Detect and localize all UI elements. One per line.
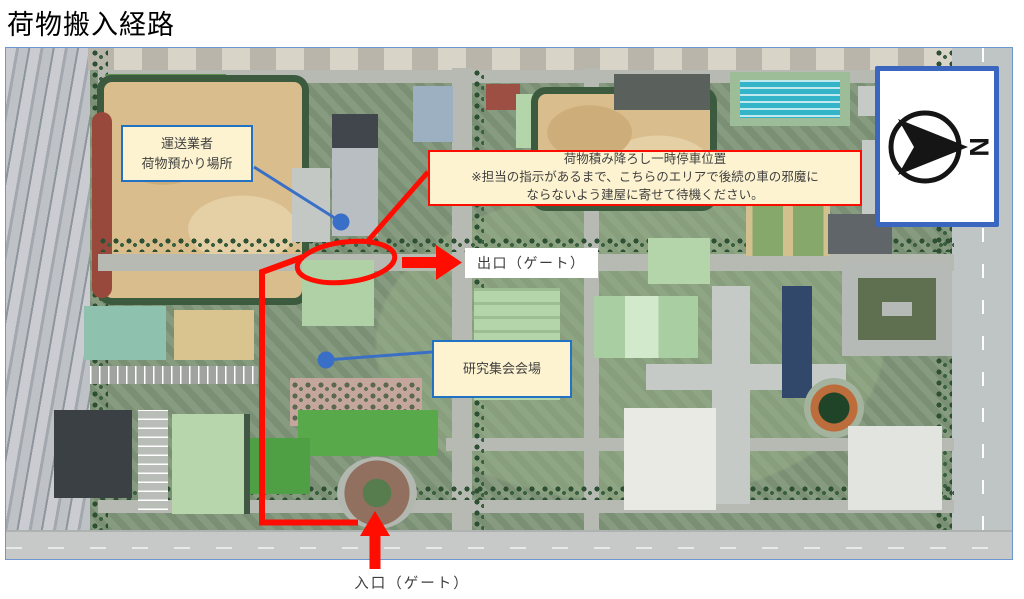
map-feature-mint-building-sw <box>172 414 250 514</box>
map-feature-mint-building-center <box>302 260 374 326</box>
compass-north-indicator: N <box>875 66 999 227</box>
map-feature-dark-building-north <box>614 74 710 110</box>
map-feature-bluegray-building <box>413 86 453 142</box>
campus-aerial-map <box>5 47 1013 560</box>
compass-arrow <box>898 119 968 175</box>
unloading-parking-note-line3: ならないよう建屋に寄せて待機ください。 <box>430 187 860 205</box>
map-feature-mint-hall <box>594 296 698 358</box>
map-road-vertical-main <box>452 68 472 530</box>
exit-gate-label: 出口（ゲート） <box>465 248 598 278</box>
map-feature-green-roof-2 <box>246 438 310 494</box>
slide-page: 荷物搬入経路 <box>0 0 1024 599</box>
map-feature-white-building <box>624 408 716 510</box>
venue-note-text: 研究集会会場 <box>434 359 570 379</box>
map-feature-parking-row <box>90 366 258 384</box>
carrier-storage-note: 運送業者 荷物預かり場所 <box>121 125 253 182</box>
map-feature-long-gray-building <box>332 114 378 236</box>
map-feature-gym-teal-roof <box>84 306 166 360</box>
map-feature-dark-building-sw <box>54 410 132 498</box>
map-feature-solar-panels <box>782 286 812 398</box>
venue-note: 研究集会会場 <box>432 340 572 398</box>
map-feature-gray-annex <box>292 168 330 242</box>
map-feature-tennis-courts <box>746 206 830 256</box>
map-feature-highway <box>6 530 1012 560</box>
unloading-parking-note-line2: ※担当の指示があるまで、こちらのエリアで後続の車の邪魔に <box>430 169 860 187</box>
unloading-parking-note: 荷物積み降ろし一時停車位置 ※担当の指示があるまで、こちらのエリアで後続の車の邪… <box>428 150 862 206</box>
map-feature-mint-building-small <box>648 238 710 284</box>
map-feature-sand-court <box>174 310 254 360</box>
carrier-storage-note-line2: 荷物預かり場所 <box>123 154 251 174</box>
map-feature-green-roof-1 <box>298 410 438 456</box>
compass-north-icon: N <box>882 73 992 221</box>
map-city-top-band <box>88 48 1012 70</box>
map-feature-parking-sw <box>138 410 168 510</box>
map-feature-roundabout <box>337 457 417 529</box>
carrier-storage-note-line1: 運送業者 <box>123 134 251 154</box>
map-feature-gray-tower <box>712 286 750 504</box>
compass-north-letter: N <box>964 137 992 157</box>
unloading-parking-note-line1: 荷物積み降ろし一時停車位置 <box>430 151 860 169</box>
map-feature-red-roof-building <box>486 84 520 110</box>
map-feature-swimming-pool <box>740 80 840 118</box>
entrance-gate-label: 入口（ゲート） <box>332 572 492 593</box>
map-feature-white-building-se <box>848 426 942 510</box>
map-feature-courtyard-building <box>842 262 952 356</box>
page-title: 荷物搬入経路 <box>7 3 175 42</box>
